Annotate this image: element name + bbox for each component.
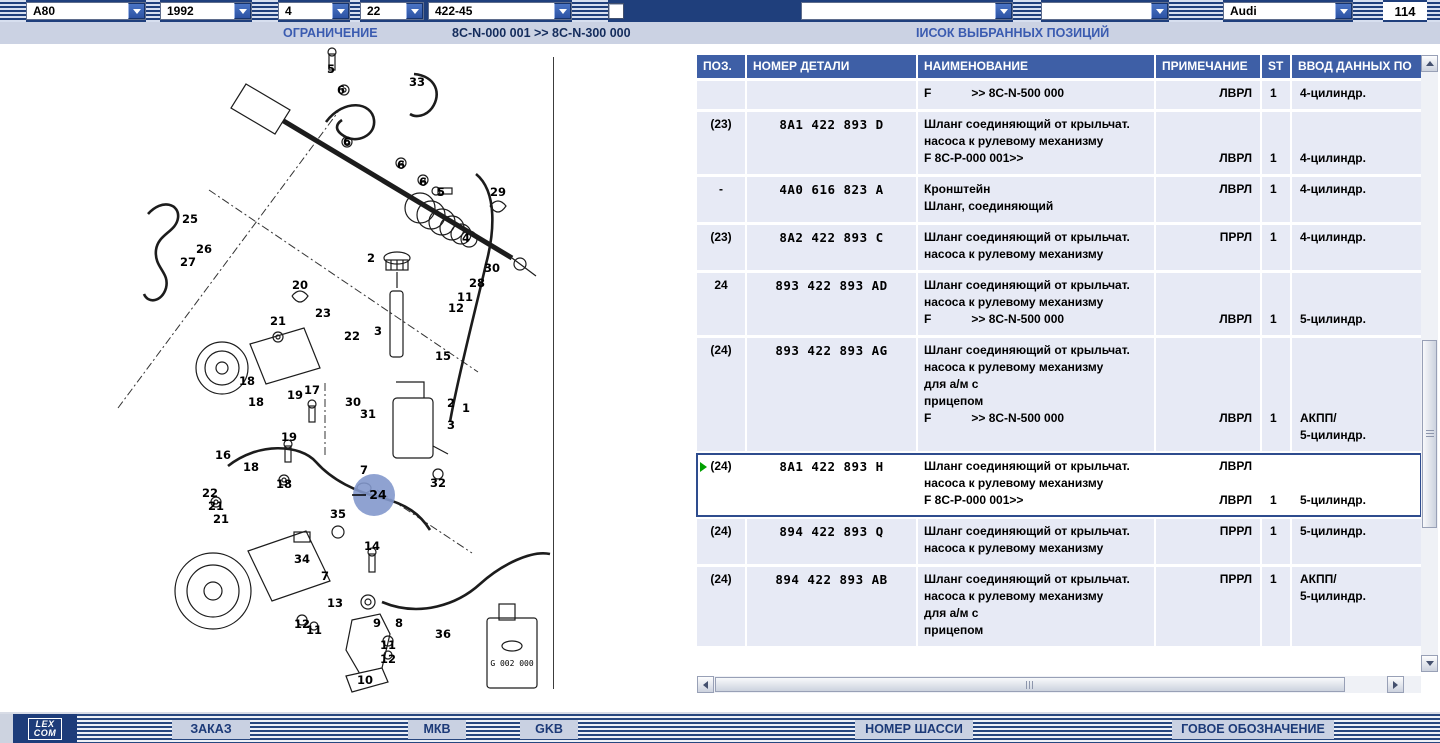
rack-housing [231,84,290,134]
cell-data-entry: 5-цилиндр. [1292,454,1421,516]
new-designation-button[interactable]: ГОВОЕ ОБОЗНАЧЕНИЕ [1172,720,1334,739]
diagram-callout: 6 [343,135,351,149]
brand-select[interactable]: Audi [1223,2,1353,20]
cell-name: Шланг соединяющий от крыльчат.насоса к р… [918,567,1156,646]
cell-name: Шланг соединяющий от крыльчат.насоса к р… [918,112,1156,174]
arrow-up-icon [1426,61,1434,66]
header-note: ПРИМЕЧАНИЕ [1156,55,1262,78]
diagram-callout: 3 [447,418,455,432]
diagram-callout: 35 [330,507,346,521]
logo-edge-strip [0,714,13,743]
chassis-number-button[interactable]: НОМЕР ШАССИ [855,720,973,739]
diagram-callout: 14 [364,539,380,553]
cell-note: ЛВРЛ [1156,112,1262,174]
highlight-marker[interactable]: 24 [352,474,395,516]
main-group-select[interactable]: 4 [278,2,350,20]
diagram-callout: 22 [344,329,360,343]
table-row[interactable]: (24)893 422 893 AGШланг соединяющий от к… [697,338,1421,451]
highlight-number: 24 [369,487,387,502]
table-row[interactable]: F >> 8C-N-500 000ЛВРЛ14-цилиндр. [697,81,1421,109]
bottom-toolbar: LEX COM ЗАКАЗ МКВ GKB НОМЕР ШАССИ ГОВОЕ … [0,712,1440,743]
chevron-down-icon[interactable] [1335,3,1352,19]
chevron-down-icon[interactable] [1151,3,1168,19]
header-name: НАИМЕНОВАНИЕ [918,55,1156,78]
cell-note: ЛВРЛ [1156,177,1262,222]
stripe-filler [1427,0,1440,22]
cell-st: 1 [1262,112,1292,174]
cell-pos: (23) [697,225,747,270]
diagram-callout: 6 [337,83,345,97]
brand-select-value: Audi [1224,4,1335,18]
diagram-callout: 34 [294,552,310,566]
diagram-callout: 25 [182,212,198,226]
stripe-filler [572,0,608,22]
diagram-callout: 26 [196,242,212,256]
diagram-callout: 15 [435,349,451,363]
chevron-down-icon[interactable] [234,3,251,19]
cell-st: 1 [1262,177,1292,222]
table-row[interactable]: (24)8A1 422 893 HШланг соединяющий от кр… [697,454,1421,516]
diagram-callout: 16 [215,448,231,462]
table-row[interactable]: (23)8A2 422 893 CШланг соединяющий от кр… [697,225,1421,270]
header-st: ST [1262,55,1292,78]
diagram-callout: 4 [462,231,470,245]
diagram-callout: 6 [397,158,405,172]
cell-st: 1 [1262,81,1292,109]
parts-diagram: G 002 000 24 563366652529262720243028111… [0,46,553,696]
toolbar-spacer [624,0,801,22]
cell-name: Шланг соединяющий от крыльчат.насоса к р… [918,225,1156,270]
diagram-callout: 19 [281,430,297,444]
stripe-filler [1169,0,1223,22]
illustration-select-value: 422-45 [429,4,554,18]
diagram-callout: 10 [357,673,373,687]
cell-name: Шланг соединяющий от крыльчат.насоса к р… [918,454,1156,516]
diagram-callout: 18 [243,460,259,474]
reservoir-tank [393,382,448,479]
parts-table: ПОЗ. НОМЕР ДЕТАЛИ НАИМЕНОВАНИЕ ПРИМЕЧАНИ… [697,55,1421,649]
selected-positions-title: IИСОК ВЫБРАННЫХ ПОЗИЦИЙ [916,26,1109,40]
cell-st: 1 [1262,519,1292,564]
diagram-callout: 5 [437,185,445,199]
diagram-callout: 2 [367,251,375,265]
cell-name: Шланг соединяющий от крыльчат.насоса к р… [918,338,1156,451]
vertical-scrollbar[interactable] [1421,55,1438,672]
diagram-callout: 36 [435,627,451,641]
diagram-callout: 18 [248,395,264,409]
diagram-canvas: G 002 000 24 563366652529262720243028111… [0,46,553,696]
cell-data-entry: АКПП/5-цилиндр. [1292,338,1421,451]
arrow-left-icon [703,681,708,689]
subgroup-select-value: 22 [361,4,406,18]
chassis-range: 8C-N-000 001 >> 8C-N-300 000 [452,26,631,40]
cell-note: ПРРЛ [1156,519,1262,564]
steering-rack-rod [262,108,512,258]
header-pos: ПОЗ. [697,55,747,78]
cell-pos: (24) [697,567,747,646]
logo-line2: COM [34,729,57,738]
reservoir-cap [384,252,410,288]
diagram-callout: 32 [430,476,446,490]
diagram-callout: 27 [180,255,196,269]
sub-header: ОГРАНИЧЕНИЕ 8C-N-000 001 >> 8C-N-300 000… [0,22,1440,44]
diagram-callout: 31 [360,407,376,421]
cell-data-entry: 4-цилиндр. [1292,177,1421,222]
table-body: F >> 8C-N-500 000ЛВРЛ14-цилиндр.(23)8A1 … [697,81,1421,646]
cell-part-number: 8A1 422 893 H [747,454,918,516]
cell-data-entry: 5-цилиндр. [1292,273,1421,335]
restriction-label: ОГРАНИЧЕНИЕ [283,26,378,40]
diagram-callout: 5 [327,62,335,76]
diagram-callout: 21 [213,512,229,526]
cell-part-number: 893 422 893 AG [747,338,918,451]
chevron-down-icon[interactable] [406,3,423,19]
stripe-filler [252,0,278,22]
stripe-filler [1353,0,1383,22]
diagram-callout: 7 [360,463,368,477]
cell-name: КронштейнШланг, соединяющий [918,177,1156,222]
pipe-25 [144,204,178,300]
diagram-callout: 30 [484,261,500,275]
power-steering-pump-upper [196,328,320,394]
diagram-callout: 12 [380,652,396,666]
diagram-callout: 18 [276,477,292,491]
diagram-callout: 33 [409,75,425,89]
table-row[interactable]: (24)894 422 893 QШланг соединяющий от кр… [697,519,1421,564]
cell-note: ЛВРЛ [1156,338,1262,451]
model-select-value: A80 [27,4,128,18]
diagram-callout: 13 [327,596,343,610]
cell-data-entry: 4-цилиндр. [1292,81,1421,109]
table-row[interactable]: (23)8A1 422 893 DШланг соединяющий от кр… [697,112,1421,174]
construction-line [209,190,478,372]
parts-catalog-window: A80 1992 4 22 422-45 [0,0,1440,743]
cell-st: 1 [1262,567,1292,646]
cell-pos [697,81,747,109]
page-number: 114 [1383,2,1427,20]
cell-part-number: 893 422 893 AD [747,273,918,335]
scroll-down-button[interactable] [1421,655,1438,672]
chevron-down-icon[interactable] [128,3,145,19]
cell-data-entry: 5-цилиндр. [1292,519,1421,564]
cell-data-entry: 4-цилиндр. [1292,225,1421,270]
diagram-callout: 20 [292,278,308,292]
panel-divider [553,57,554,689]
cell-st: 1 [1262,338,1292,451]
table-row[interactable]: -4A0 616 823 AКронштейнШланг, соединяющи… [697,177,1421,222]
cell-st: 1 [1262,273,1292,335]
model-select[interactable]: A80 [26,2,146,20]
diagram-callout: 12 [448,301,464,315]
diagram-callout: 8 [395,616,403,630]
diagram-callout: 28 [469,276,485,290]
cell-part-number: 8A1 422 893 D [747,112,918,174]
header-part-number: НОМЕР ДЕТАЛИ [747,55,918,78]
cell-pos: (24) [697,338,747,451]
table-row[interactable]: 24893 422 893 ADШланг соединяющий от кры… [697,273,1421,335]
cell-pos: (24) [697,519,747,564]
bottle-part-number: G 002 000 [490,659,534,668]
cell-name: Шланг соединяющий от крыльчат.насоса к р… [918,519,1156,564]
chevron-down-icon[interactable] [332,3,349,19]
diagram-callout: 11 [306,623,322,637]
vertical-scroll-thumb[interactable] [1422,340,1437,528]
diagram-callout: 3 [374,324,382,338]
horizontal-scrollbar[interactable] [697,676,1421,693]
year-select-value: 1992 [161,4,234,18]
cell-pos: (23) [697,112,747,174]
mkb-button[interactable]: МКВ [408,720,466,739]
option-select-1[interactable] [801,2,1013,20]
cell-st: 1 [1262,225,1292,270]
cell-part-number [747,81,918,109]
table-header-row: ПОЗ. НОМЕР ДЕТАЛИ НАИМЕНОВАНИЕ ПРИМЕЧАНИ… [697,55,1421,78]
cell-data-entry: АКПП/5-цилиндр. [1292,567,1421,646]
cell-part-number: 894 422 893 Q [747,519,918,564]
cell-pos: 24 [697,273,747,335]
cell-note: ЛВРЛ [1156,273,1262,335]
cell-note: ПРРЛ [1156,567,1262,646]
option-select-2[interactable] [1041,2,1169,20]
cell-st: 1 [1262,454,1292,516]
illustration-select[interactable]: 422-45 [428,2,572,20]
diagram-callout: 2 [447,396,455,410]
top-toolbar: A80 1992 4 22 422-45 [0,0,1440,22]
stripe-filler [1013,0,1041,22]
oil-bottle [487,604,537,688]
cell-note: ПРРЛ [1156,225,1262,270]
header-data-entry: ВВОД ДАННЫХ ПО [1292,55,1421,78]
diagram-callout: 22 [202,486,218,500]
diagram-callout: 17 [304,383,320,397]
main-area: G 002 000 24 563366652529262720243028111… [0,44,1440,712]
cell-part-number: 4A0 616 823 A [747,177,918,222]
stripe-filler [0,0,26,22]
subgroup-select[interactable]: 22 [360,2,424,20]
chevron-down-icon[interactable] [995,3,1012,19]
cell-name: F >> 8C-N-500 000 [918,81,1156,109]
cell-data-entry: 4-цилиндр. [1292,112,1421,174]
diagram-callout: 19 [287,388,303,402]
diagram-callout: 7 [321,569,329,583]
diagram-callout: 23 [315,306,331,320]
power-steering-pump-lower [175,531,330,629]
reservoir-tube [390,291,403,357]
hose-8 [382,553,550,609]
diagram-callout: 21 [270,314,286,328]
table-row[interactable]: (24)894 422 893 ABШланг соединяющий от к… [697,567,1421,646]
scroll-up-button[interactable] [1421,55,1438,72]
diagram-callout: 11 [380,638,396,652]
gkb-button[interactable]: GKB [520,720,578,739]
chevron-down-icon[interactable] [554,3,571,19]
stripe-filler [146,0,160,22]
stripe-filler [350,0,360,22]
diagram-callout: 30 [345,395,361,409]
diagram-callout: 29 [490,185,506,199]
order-button[interactable]: ЗАКАЗ [172,720,250,739]
year-select[interactable]: 1992 [160,2,252,20]
main-group-select-value: 4 [279,4,332,18]
filter-checkbox[interactable] [608,3,624,19]
lexcom-logo: LEX COM [13,714,77,743]
diagram-callout: 21 [208,499,224,513]
horizontal-scroll-thumb[interactable] [715,677,1345,692]
cell-part-number: 8A2 422 893 C [747,225,918,270]
scroll-right-button[interactable] [1387,676,1404,693]
diagram-callout: 9 [373,616,381,630]
selected-row-marker-icon [700,462,707,472]
clamp-13 [361,595,375,609]
cell-part-number: 894 422 893 AB [747,567,918,646]
diagram-callout: 6 [419,175,427,189]
arrow-right-icon [1393,681,1398,689]
diagram-callout: 1 [462,401,470,415]
cell-name: Шланг соединяющий от крыльчат.насоса к р… [918,273,1156,335]
diagram-callout: 18 [239,374,255,388]
tie-rod [512,258,536,276]
arrow-down-icon [1426,661,1434,666]
cell-pos: - [697,177,747,222]
cell-note: ЛВРЛ ЛВРЛ [1156,454,1262,516]
scroll-left-button[interactable] [697,676,714,693]
cell-note: ЛВРЛ [1156,81,1262,109]
